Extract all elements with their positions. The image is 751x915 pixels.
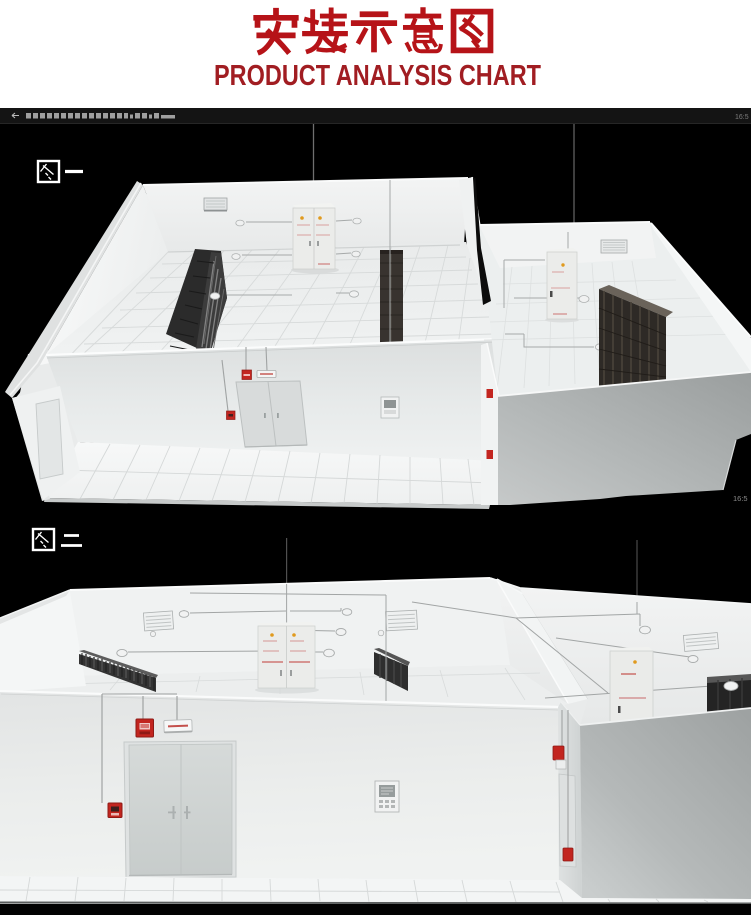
svg-text:PRODUCT ANALYSIS CHART: PRODUCT ANALYSIS CHART — [214, 60, 541, 92]
svg-text:16:5: 16:5 — [735, 114, 749, 121]
svg-text:16:5: 16:5 — [733, 494, 748, 503]
